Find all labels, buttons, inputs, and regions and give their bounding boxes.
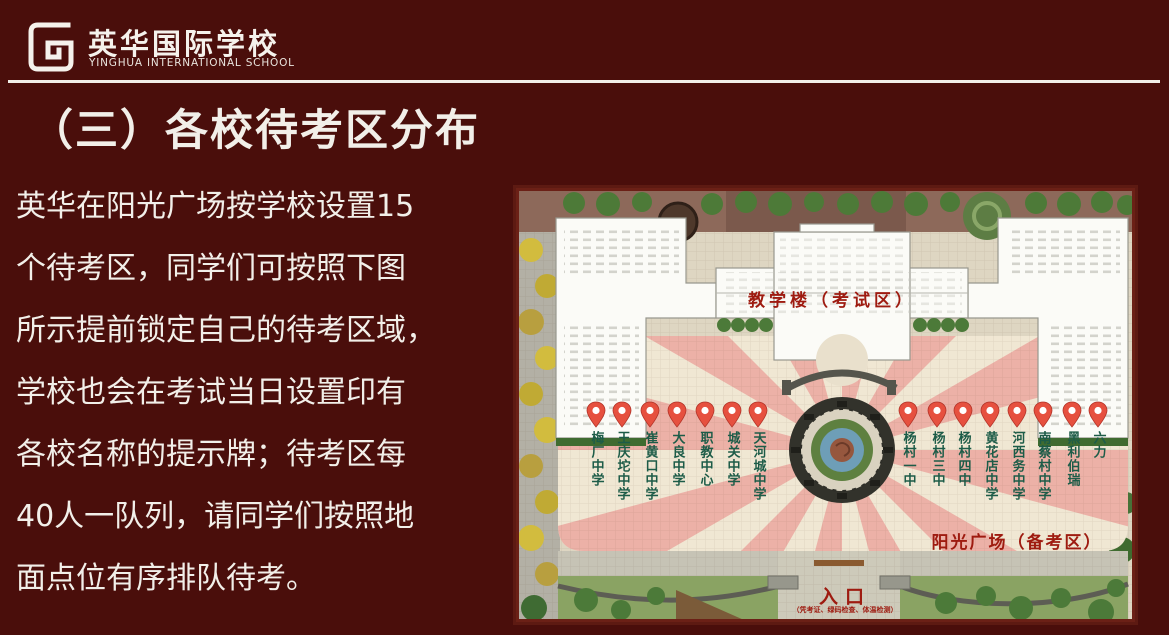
map-pin-icon (586, 401, 606, 428)
school-name: 杨村一中 (902, 431, 915, 487)
school-name: 职教中心 (699, 431, 712, 487)
school-name-en: YINGHUA INTERNATIONAL SCHOOL (89, 57, 295, 69)
school-name: 河西务中学 (1011, 431, 1024, 501)
waiting-area-marker: 黑利伯瑞 (1062, 401, 1082, 487)
school-name: 六力 (1092, 431, 1105, 459)
waiting-area-marker: 黄花店中学 (980, 401, 1000, 501)
map-pin-icon (612, 401, 632, 428)
slide: 英华国际学校 YINGHUA INTERNATIONAL SCHOOL （三）各… (0, 0, 1169, 635)
waiting-area-marker: 六力 (1088, 401, 1108, 459)
map-pin-icon (1033, 401, 1053, 428)
map-pin-icon (1007, 401, 1027, 428)
map-pin-icon (748, 401, 768, 428)
body-line: 英华在阳光广场按学校设置15 (16, 176, 516, 238)
body-line: 个待考区，同学们可按照下图 (16, 238, 516, 300)
school-logo-icon (26, 18, 76, 76)
body-line: 面点位有序排队待考。 (16, 548, 516, 610)
body-line: 40人一队列，请同学们按照地 (16, 486, 516, 548)
waiting-area-marker: 梅厂中学 (586, 401, 606, 487)
map-pin-icon (640, 401, 660, 428)
map-pin-icon (953, 401, 973, 428)
waiting-area-marker: 城关中学 (722, 401, 742, 487)
map-pin-icon (1062, 401, 1082, 428)
school-name: 城关中学 (726, 431, 739, 487)
map-pin-icon (722, 401, 742, 428)
school-name: 大良中学 (671, 431, 684, 487)
map-pin-icon (695, 401, 715, 428)
waiting-area-marker: 王庆坨中学 (612, 401, 632, 501)
school-name: 黑利伯瑞 (1066, 431, 1079, 487)
plaza-label: 阳光广场（备考区） (932, 528, 1103, 553)
map-pin-icon (980, 401, 1000, 428)
waiting-area-marker: 杨村一中 (898, 401, 918, 487)
school-name: 天河城中学 (752, 431, 765, 501)
school-name: 梅厂中学 (590, 431, 603, 487)
map-pin-icon (667, 401, 687, 428)
body-line: 学校也会在考试当日设置印有 (16, 362, 516, 424)
building-label: 教学楼（考试区） (748, 286, 916, 311)
school-name: 南蔡村中学 (1037, 431, 1050, 501)
entrance-note: （凭考证、绿码检查、体温检测） (793, 605, 898, 615)
waiting-area-marker: 河西务中学 (1007, 401, 1027, 501)
map-pin-icon (898, 401, 918, 428)
waiting-area-marker: 大良中学 (667, 401, 687, 487)
body-text: 英华在阳光广场按学校设置15 个待考区，同学们可按照下图 所示提前锁定自己的待考… (16, 176, 516, 610)
school-name: 崔黄口中学 (644, 431, 657, 501)
school-name: 王庆坨中学 (616, 431, 629, 501)
school-name: 杨村三中 (931, 431, 944, 487)
school-name: 杨村四中 (957, 431, 970, 487)
map-pin-icon (927, 401, 947, 428)
map-pin-icon (1088, 401, 1108, 428)
waiting-area-marker: 崔黄口中学 (640, 401, 660, 501)
waiting-area-markers: 梅厂中学 王庆坨中学 崔黄口中学 大良中学 职教中心 城关中学 天河城中学 杨村… (516, 188, 1135, 622)
waiting-area-marker: 职教中心 (695, 401, 715, 487)
waiting-area-marker: 南蔡村中学 (1033, 401, 1053, 501)
body-line: 各校名称的提示牌；待考区每 (16, 424, 516, 486)
waiting-area-marker: 杨村四中 (953, 401, 973, 487)
school-name: 黄花店中学 (984, 431, 997, 501)
body-line: 所示提前锁定自己的待考区域， (16, 300, 516, 362)
header-divider (8, 80, 1160, 83)
page-title: （三）各校待考区分布 (30, 96, 480, 158)
waiting-area-marker: 天河城中学 (748, 401, 768, 501)
campus-map: 梅厂中学 王庆坨中学 崔黄口中学 大良中学 职教中心 城关中学 天河城中学 杨村… (516, 188, 1135, 622)
waiting-area-marker: 杨村三中 (927, 401, 947, 487)
